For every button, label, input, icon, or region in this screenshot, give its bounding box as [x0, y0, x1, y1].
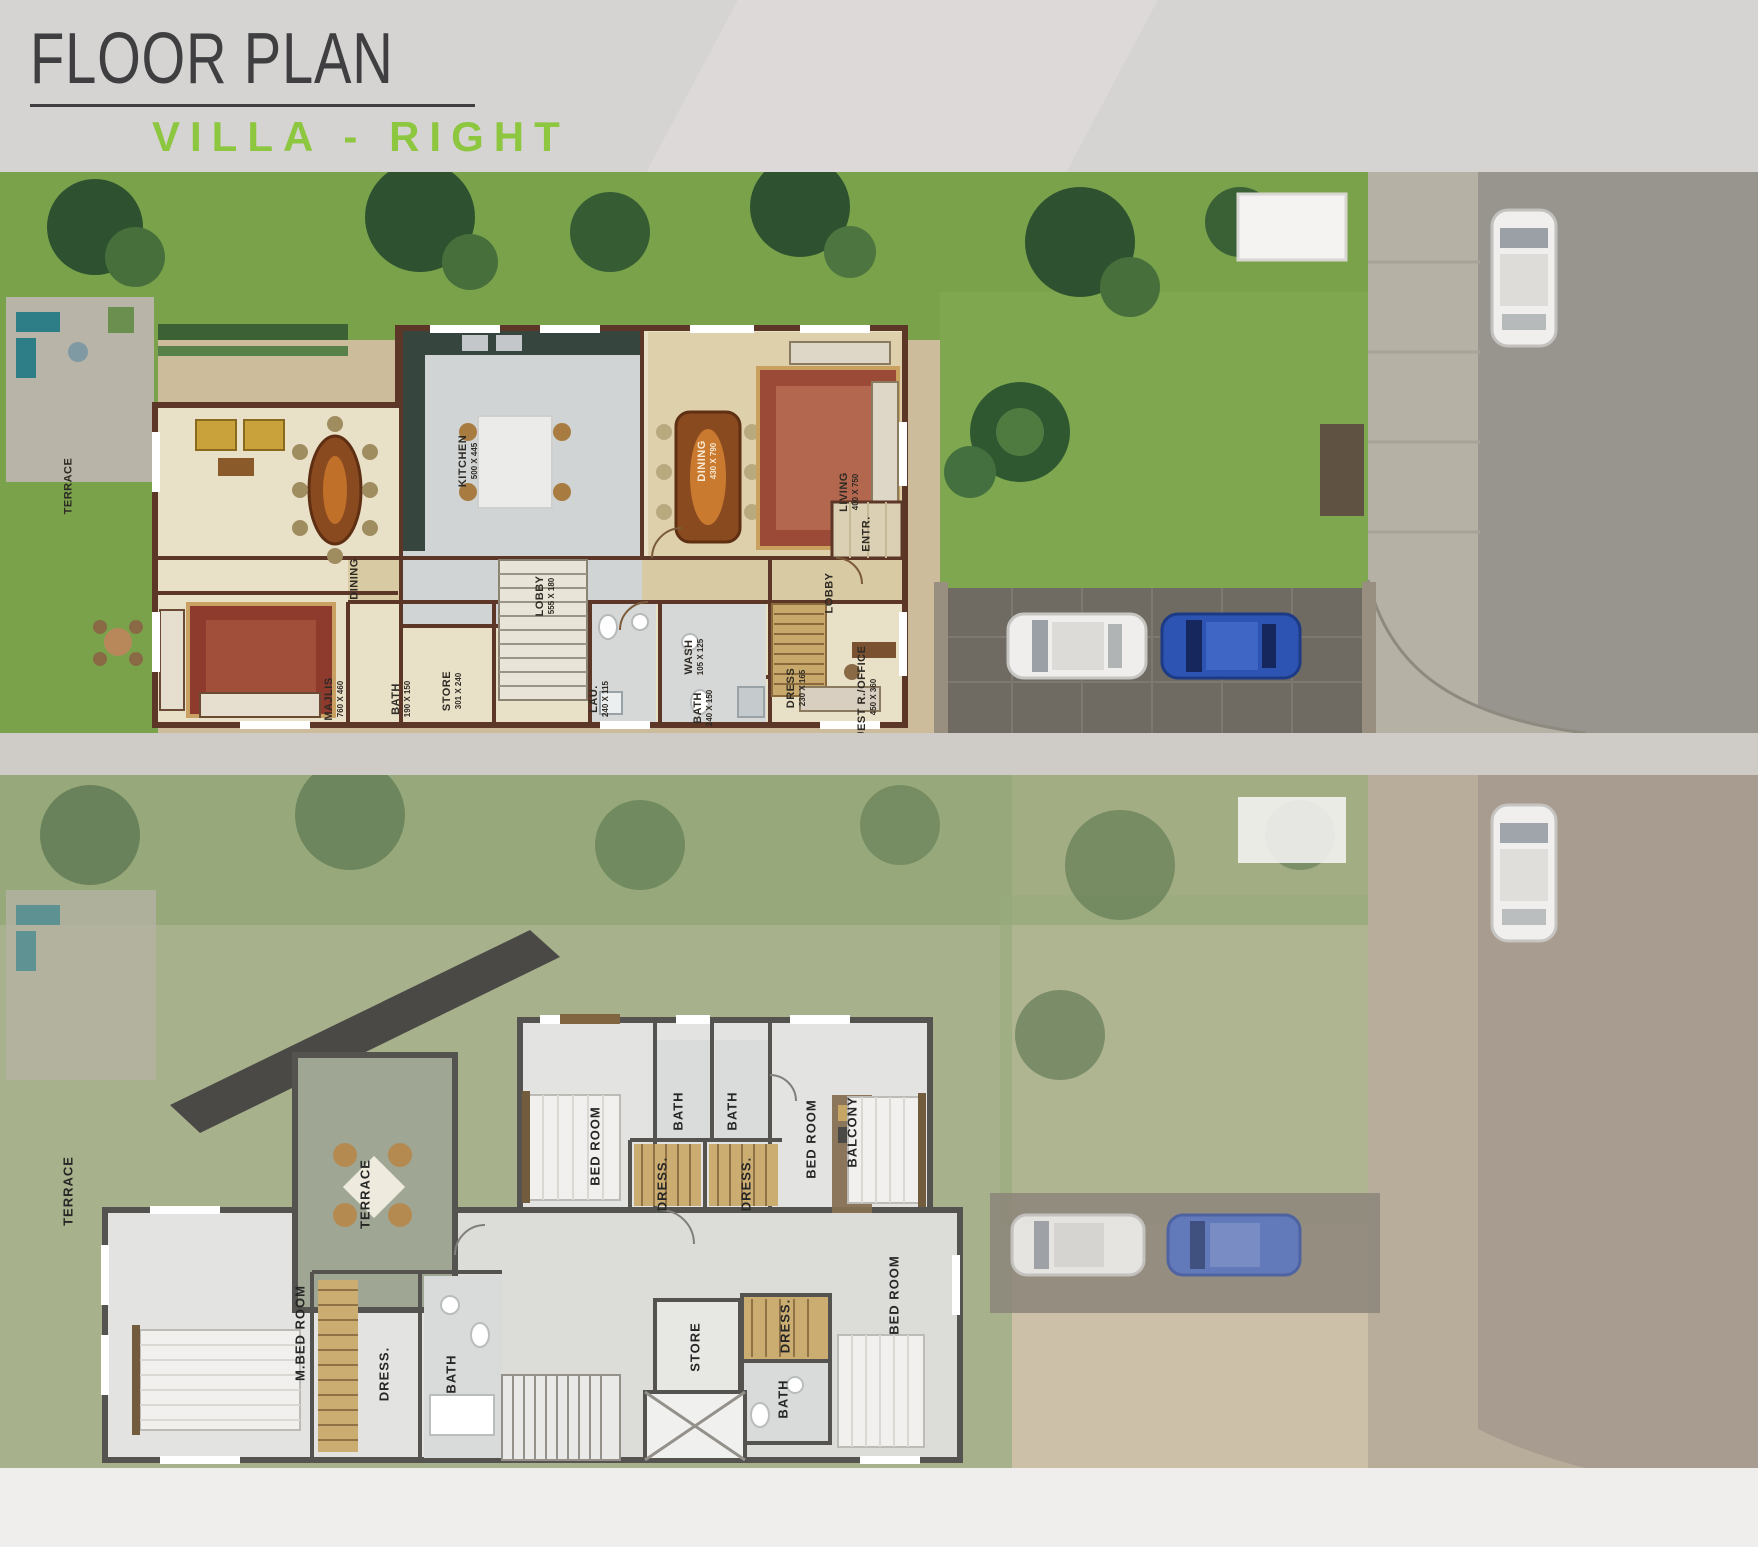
room-label: TERRACE — [62, 458, 75, 515]
room-label: DRESS. — [740, 1157, 755, 1211]
floor-plan-sheet: FLOOR PLAN VILLA - RIGHT — [0, 0, 1758, 1547]
ground-floor-labels: TERRACEDININGKITCHEN500 X 445DINING430 X… — [0, 172, 1758, 733]
panel-divider — [0, 733, 1758, 775]
room-label: DRESS. — [655, 1157, 670, 1211]
title-underline — [30, 104, 475, 107]
room-label: MAJLIS760 X 460 — [323, 678, 345, 721]
room-label: WASH105 X 125 — [683, 639, 705, 675]
room-label: LIVING400 X 750 — [838, 472, 860, 512]
room-label: BED ROOM — [588, 1106, 603, 1186]
room-label: GUEST R./OFFICE450 X 360 — [856, 645, 878, 733]
room-label: BED ROOM — [805, 1099, 820, 1179]
room-label: TERRACE — [61, 1156, 76, 1226]
room-label: LOBBY — [823, 572, 836, 613]
room-label: LOBBY555 X 180 — [534, 575, 556, 616]
page-subtitle: VILLA - RIGHT — [152, 113, 570, 161]
room-label: BED ROOM — [887, 1255, 902, 1335]
first-floor-plan: TERRACETERRACEBED ROOMBATHBATHDRESS.DRES… — [0, 775, 1758, 1468]
room-label: DRESS230 X 165 — [785, 668, 807, 708]
room-label: DINING — [349, 558, 362, 600]
room-label: TERRACE — [358, 1159, 373, 1229]
room-label: BATH — [777, 1379, 792, 1418]
header: FLOOR PLAN VILLA - RIGHT — [0, 0, 1758, 172]
ground-floor-plan: TERRACEDININGKITCHEN500 X 445DINING430 X… — [0, 172, 1758, 733]
room-label: BALCONY — [845, 1096, 860, 1167]
page-title: FLOOR PLAN — [30, 18, 394, 100]
room-label: BATH190 X 150 — [390, 681, 412, 717]
room-label: ENTR. — [860, 516, 873, 552]
room-label: DRESS. — [778, 1299, 793, 1353]
first-floor-labels: TERRACETERRACEBED ROOMBATHBATHDRESS.DRES… — [0, 775, 1758, 1468]
room-label: BATH — [444, 1355, 459, 1394]
room-label: BATH — [726, 1092, 741, 1131]
room-label: STORE — [689, 1322, 704, 1372]
footer-strip — [0, 1468, 1758, 1547]
room-label: DINING430 X 790 — [696, 440, 718, 482]
room-label: STORE301 X 240 — [441, 671, 463, 711]
room-label: BATH240 X 150 — [692, 690, 714, 726]
room-label: KITCHEN500 X 445 — [457, 435, 479, 487]
room-label: M.BED ROOM — [293, 1285, 308, 1381]
room-label: BATH — [671, 1092, 686, 1131]
room-label: LAU.240 X 115 — [589, 681, 611, 717]
room-label: DRESS. — [378, 1347, 393, 1401]
